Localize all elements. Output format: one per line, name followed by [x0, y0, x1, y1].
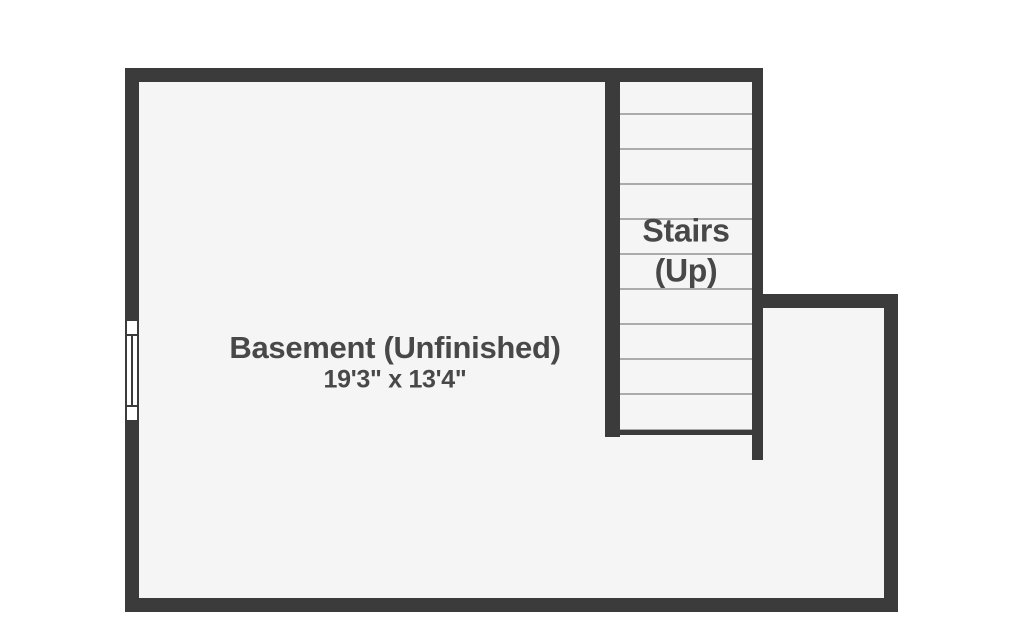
stairs-bottom-edge: [620, 429, 752, 435]
window-frame-bottom: [127, 405, 137, 407]
window-icon: [125, 319, 139, 422]
stair-step: [620, 358, 752, 360]
wall-bottom: [125, 598, 898, 612]
window-frame-center: [131, 336, 133, 405]
wall-top: [125, 68, 763, 82]
room-dimensions: 19'3" x 13'4": [324, 366, 467, 395]
exterior-notch: [763, 68, 898, 294]
room-label: Basement (Unfinished): [229, 330, 560, 366]
wall-stairs-right: [752, 68, 763, 460]
stairs-up-label: (Up): [655, 253, 718, 290]
stair-step: [620, 183, 752, 185]
stair-step: [620, 323, 752, 325]
stair-step: [620, 148, 752, 150]
wall-extension-top: [752, 294, 898, 308]
wall-stairs-left: [605, 82, 620, 437]
basement-floor: Basement (Unfinished) 19'3" x 13'4" Stai…: [125, 68, 898, 612]
stairs-label: Stairs: [642, 213, 729, 250]
floorplan-canvas: Basement (Unfinished) 19'3" x 13'4" Stai…: [0, 0, 1024, 633]
stair-step: [620, 113, 752, 115]
stair-step: [620, 393, 752, 395]
wall-extension-right: [884, 294, 898, 612]
